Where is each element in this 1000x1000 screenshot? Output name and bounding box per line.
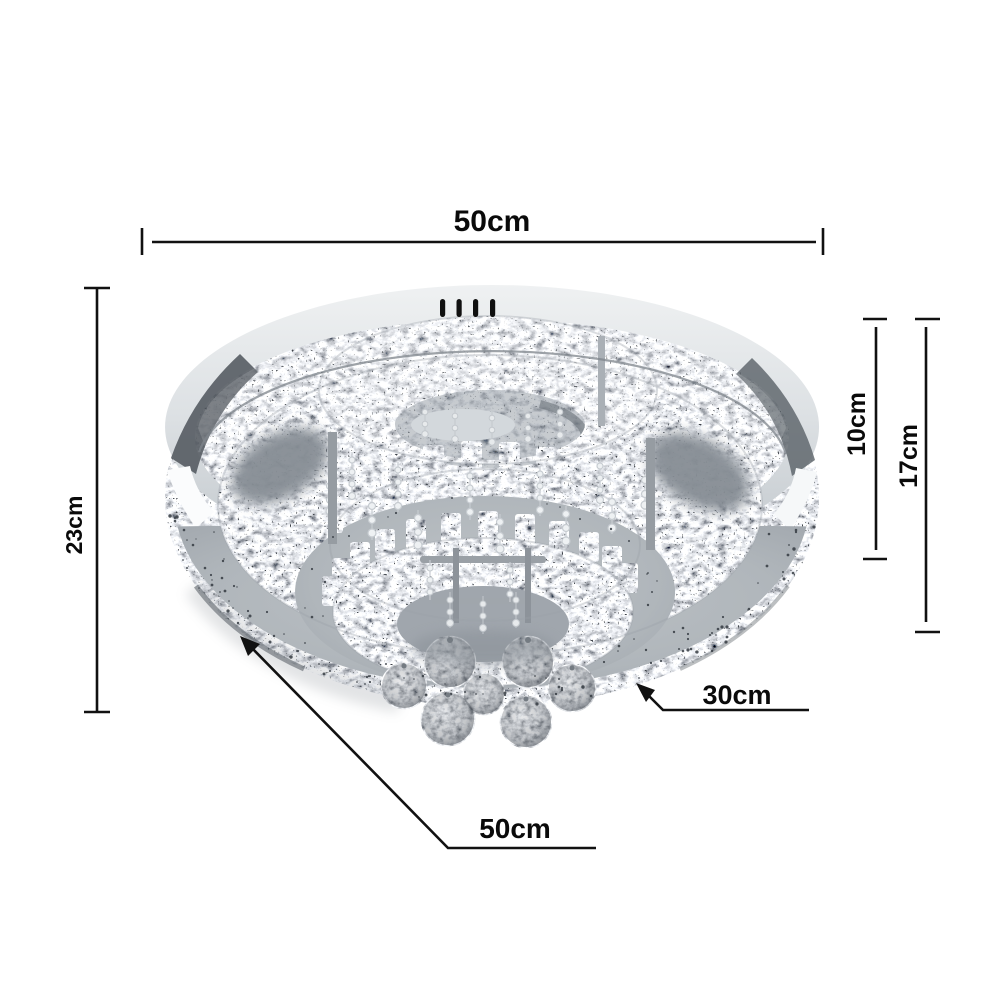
svg-text:17cm: 17cm: [895, 424, 923, 488]
svg-text:23cm: 23cm: [61, 496, 87, 555]
svg-text:10cm: 10cm: [843, 392, 871, 456]
svg-text:30cm: 30cm: [702, 680, 771, 710]
svg-text:50cm: 50cm: [479, 813, 551, 844]
svg-text:50cm: 50cm: [454, 205, 531, 238]
